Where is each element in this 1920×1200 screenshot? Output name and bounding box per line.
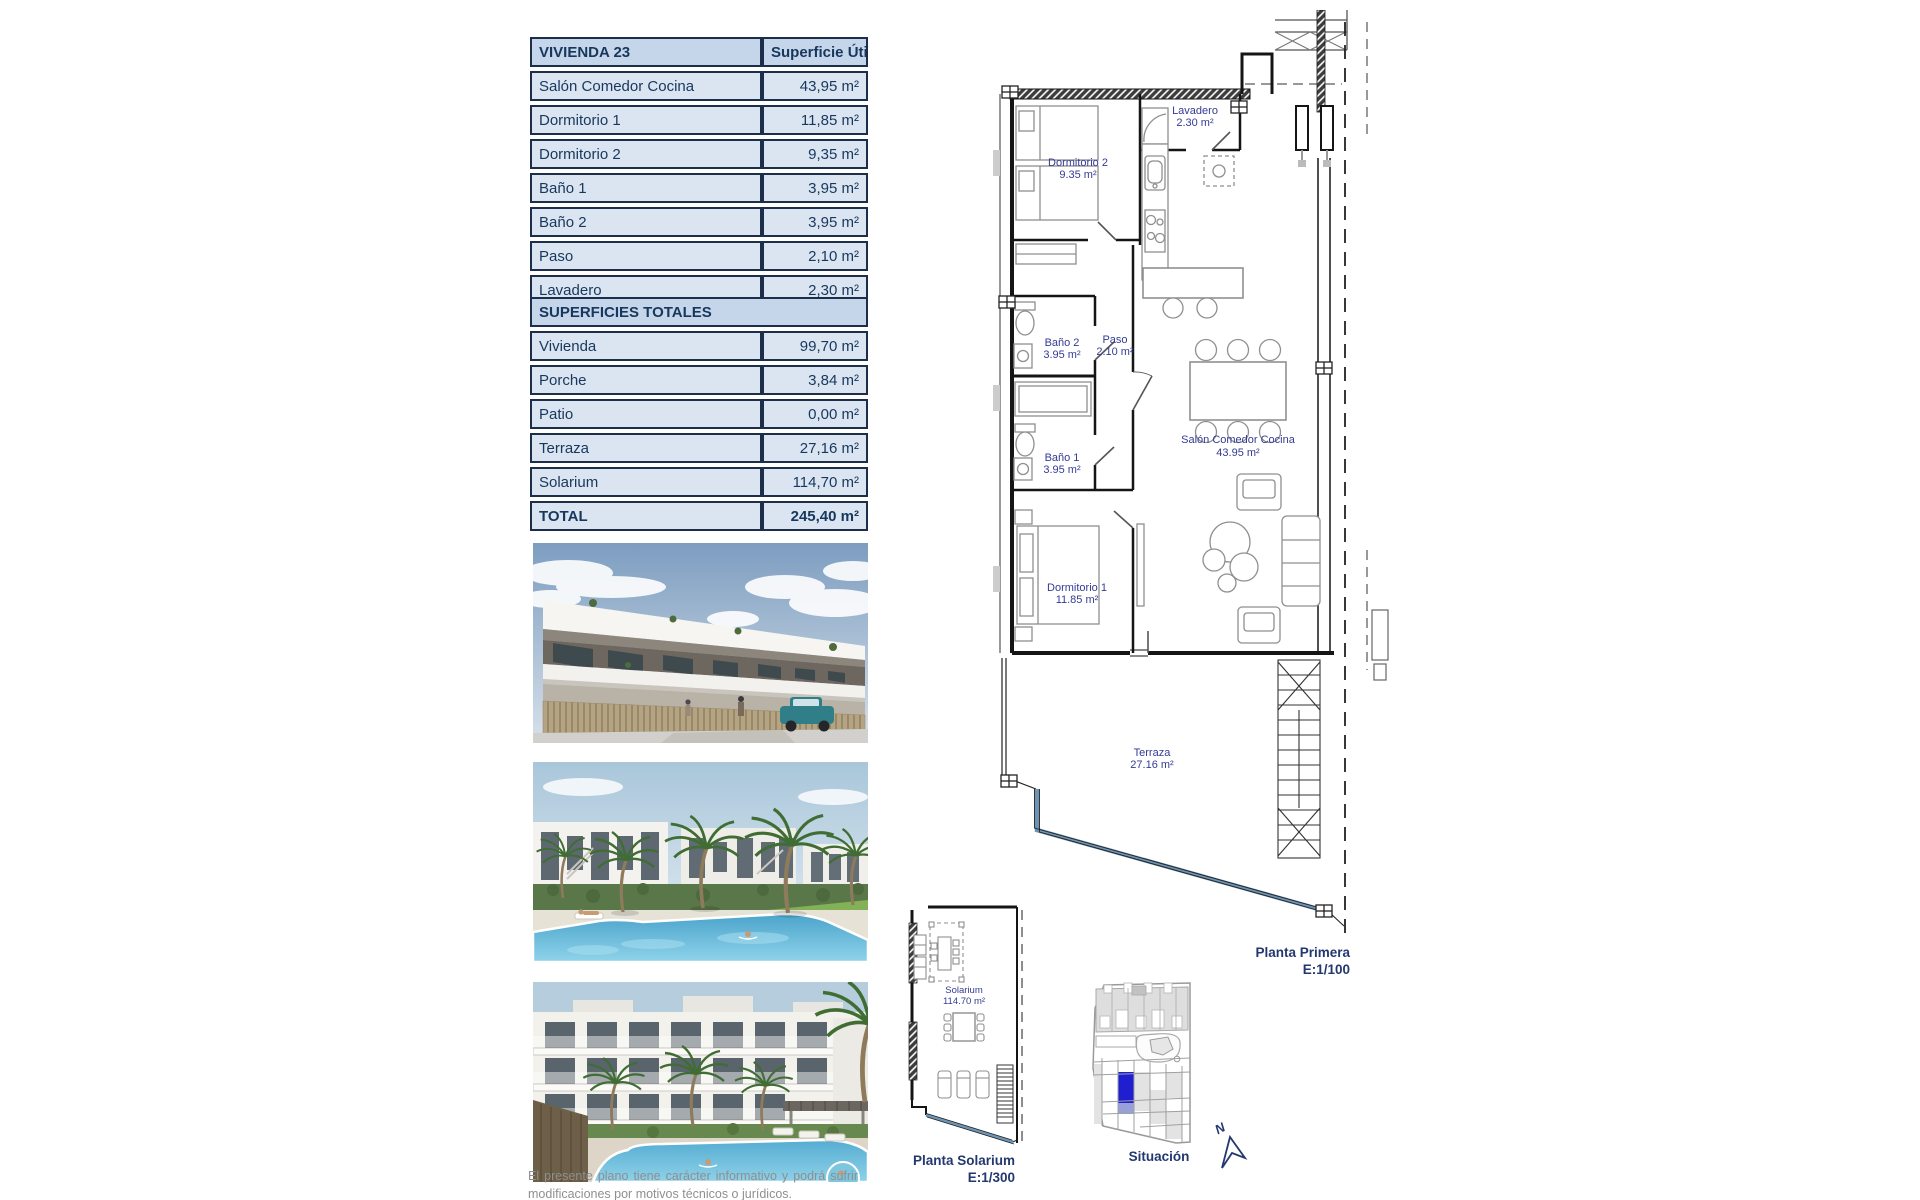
- svg-text:9.35 m²: 9.35 m²: [1059, 169, 1097, 181]
- row-value: 9,35 m²: [762, 139, 868, 169]
- table-header-row: SUPERFICIES TOTALES: [530, 297, 868, 327]
- room-label-dormitorio-1: Dormitorio 1: [1047, 582, 1107, 594]
- table-row: Baño 2 3,95 m²: [530, 207, 868, 237]
- north-arrow: N: [1212, 1119, 1245, 1168]
- floorplan-planta-solarium: Solarium 114.70 m²: [900, 895, 1050, 1155]
- svg-text:2.30 m²: 2.30 m²: [1176, 117, 1214, 129]
- table-value-header: Superficie Útil: [762, 37, 868, 67]
- row-value: 43,95 m²: [762, 71, 868, 101]
- caption-planta-primera: Planta Primera E:1/100: [1150, 944, 1350, 978]
- site-pool-area: [1136, 1034, 1180, 1062]
- row-value: 27,16 m²: [762, 433, 868, 463]
- room-label-terraza: Terraza: [1134, 747, 1172, 759]
- row-label: Paso: [530, 241, 762, 271]
- room-label-salon: Salón Comedor Cocina: [1181, 434, 1296, 446]
- site-plan-situacion: N: [1080, 980, 1280, 1200]
- table-title: SUPERFICIES TOTALES: [530, 297, 868, 327]
- room-label-paso: Paso: [1102, 334, 1127, 346]
- site-highlight-unit: [1118, 1072, 1134, 1103]
- solarium-furniture: [938, 1013, 989, 1098]
- site-road: [1096, 1036, 1136, 1047]
- row-label: Dormitorio 2: [530, 139, 762, 169]
- north-label: N: [1212, 1119, 1228, 1137]
- caption-planta-solarium: Planta Solarium E:1/300: [877, 1152, 1015, 1186]
- table-row: Baño 1 3,95 m²: [530, 173, 868, 203]
- table-row: Dormitorio 2 9,35 m²: [530, 139, 868, 169]
- svg-text:114.70 m²: 114.70 m²: [943, 996, 985, 1007]
- table-row: Vivienda 99,70 m²: [530, 331, 868, 361]
- terrace-edge: [1002, 658, 1344, 926]
- staircase: [1278, 660, 1320, 858]
- render-photo-pool: [533, 762, 868, 962]
- row-value: 3,95 m²: [762, 173, 868, 203]
- room-label-dormitorio-2: Dormitorio 2: [1048, 157, 1108, 169]
- room-label-lavadero: Lavadero: [1172, 105, 1218, 117]
- table-row: Terraza 27,16 m²: [530, 433, 868, 463]
- table-row: Porche 3,84 m²: [530, 365, 868, 395]
- solarium-terrace-edge: [925, 1113, 1017, 1144]
- caption-title: Planta Solarium: [877, 1152, 1015, 1169]
- caption-scale: E:1/100: [1150, 961, 1350, 978]
- room-label-bano-1: Baño 1: [1045, 452, 1080, 464]
- row-value: 99,70 m²: [762, 331, 868, 361]
- row-value: 0,00 m²: [762, 399, 868, 429]
- table-row: Patio 0,00 m²: [530, 399, 868, 429]
- caption-situacion: Situación: [1104, 1148, 1214, 1165]
- svg-text:3.95 m²: 3.95 m²: [1043, 464, 1081, 476]
- floorplan-planta-primera: Lavadero 2.30 m² Dormitorio 2 9.35 m² Ba…: [990, 10, 1400, 950]
- svg-text:27.16 m²: 27.16 m²: [1130, 759, 1174, 771]
- site-top-block: [1096, 983, 1188, 1032]
- table-total-row: TOTAL 245,40 m²: [530, 501, 868, 531]
- room-label-bano-2: Baño 2: [1045, 337, 1080, 349]
- caption-scale: E:1/300: [877, 1169, 1015, 1186]
- row-label: Porche: [530, 365, 762, 395]
- table-totales: SUPERFICIES TOTALES Vivienda 99,70 m² Po…: [530, 293, 868, 535]
- table-row: Solarium 114,70 m²: [530, 467, 868, 497]
- row-label: Vivienda: [530, 331, 762, 361]
- row-label: Terraza: [530, 433, 762, 463]
- solarium-label: Solarium: [945, 985, 983, 996]
- row-label: Salón Comedor Cocina: [530, 71, 762, 101]
- row-value: 3,95 m²: [762, 207, 868, 237]
- row-label: Baño 1: [530, 173, 762, 203]
- table-row: Paso 2,10 m²: [530, 241, 868, 271]
- row-label: Dormitorio 1: [530, 105, 762, 135]
- svg-text:43.95 m²: 43.95 m²: [1216, 447, 1260, 459]
- table-title: VIVIENDA 23: [530, 37, 762, 67]
- table-row: Salón Comedor Cocina 43,95 m²: [530, 71, 868, 101]
- row-value: 2,10 m²: [762, 241, 868, 271]
- porch-pillars: [1296, 106, 1333, 167]
- solarium-stairs: [997, 1065, 1013, 1123]
- table-row: Dormitorio 1 11,85 m²: [530, 105, 868, 135]
- row-label: Patio: [530, 399, 762, 429]
- render-photo-building-pool: [533, 982, 868, 1182]
- svg-text:2.10 m²: 2.10 m²: [1096, 346, 1134, 358]
- boundary-lines: [1345, 22, 1388, 940]
- solarium-pergola: [914, 922, 964, 982]
- svg-text:11.85 m²: 11.85 m²: [1056, 594, 1099, 606]
- row-label: TOTAL: [530, 501, 762, 531]
- table-vivienda: VIVIENDA 23 Superficie Útil Salón Comedo…: [530, 33, 868, 309]
- row-value: 11,85 m²: [762, 105, 868, 135]
- plan-sheet: VIVIENDA 23 Superficie Útil Salón Comedo…: [0, 0, 1920, 1200]
- site-highlight-terrace: [1118, 1103, 1134, 1114]
- disclaimer-text: El presente plano tiene carácter informa…: [528, 1168, 858, 1200]
- table-header-row: VIVIENDA 23 Superficie Útil: [530, 37, 868, 67]
- row-value: 3,84 m²: [762, 365, 868, 395]
- row-label: Baño 2: [530, 207, 762, 237]
- render-photo-exterior-street: [533, 543, 868, 743]
- row-value: 245,40 m²: [762, 501, 868, 531]
- row-label: Solarium: [530, 467, 762, 497]
- row-value: 114,70 m²: [762, 467, 868, 497]
- svg-text:3.95 m²: 3.95 m²: [1043, 349, 1081, 361]
- caption-title: Planta Primera: [1150, 944, 1350, 961]
